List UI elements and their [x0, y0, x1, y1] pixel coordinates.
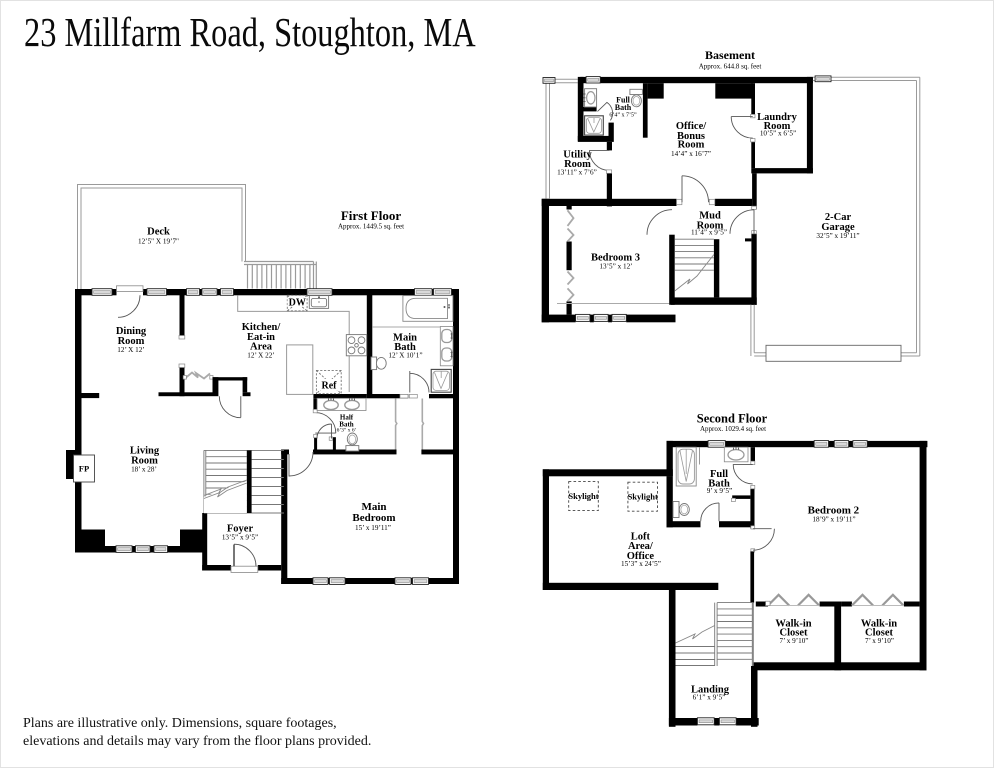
svg-text:First Floor: First Floor [341, 208, 402, 223]
svg-text:DW: DW [289, 298, 306, 309]
svg-text:Approx. 644.8 sq. feet: Approx. 644.8 sq. feet [699, 63, 762, 71]
svg-text:Approx. 1029.4 sq. feet: Approx. 1029.4 sq. feet [700, 425, 766, 433]
svg-text:32’5” x 19’11”: 32’5” x 19’11” [816, 232, 859, 240]
svg-text:14’4” x 16’7”: 14’4” x 16’7” [671, 150, 711, 158]
svg-text:11’4” x 9’5”: 11’4” x 9’5” [691, 229, 727, 237]
svg-text:Bedroom: Bedroom [352, 512, 395, 524]
svg-text:9’ x 9’5”: 9’ x 9’5” [707, 487, 732, 495]
svg-text:10’5” x 6’5”: 10’5” x 6’5” [760, 130, 796, 138]
svg-text:6’4” x 7’5”: 6’4” x 7’5” [609, 113, 637, 119]
svg-text:7’ x 9’10”: 7’ x 9’10” [779, 637, 808, 645]
svg-text:12’5" X 19’7": 12’5" X 19’7" [138, 238, 179, 246]
svg-text:Approx. 1449.5 sq. feet: Approx. 1449.5 sq. feet [338, 223, 404, 231]
svg-text:Skylight: Skylight [568, 491, 598, 501]
svg-text:12’ X 12’: 12’ X 12’ [117, 346, 144, 354]
svg-text:Basement: Basement [705, 48, 755, 62]
svg-text:15’ x 19’11”: 15’ x 19’11” [355, 524, 391, 532]
svg-text:FP: FP [79, 464, 89, 474]
svg-text:12’ X 10’1”: 12’ X 10’1” [388, 352, 422, 360]
svg-text:13’5” x 12’: 13’5” x 12’ [599, 263, 632, 271]
svg-text:Skylight: Skylight [628, 492, 658, 502]
svg-text:Deck: Deck [147, 227, 170, 238]
svg-text:15’3” x 24’5”: 15’3” x 24’5” [621, 560, 661, 568]
svg-text:Ref: Ref [322, 381, 338, 392]
svg-text:7’ x 9’10”: 7’ x 9’10” [865, 637, 894, 645]
svg-text:6’3” x 6’: 6’3” x 6’ [337, 428, 357, 434]
svg-text:18’ x 28’: 18’ x 28’ [131, 466, 157, 474]
svg-text:12’ X 22’: 12’ X 22’ [247, 352, 274, 360]
svg-text:Bath: Bath [615, 103, 632, 112]
svg-text:13’11” x 7’6”: 13’11” x 7’6” [557, 169, 597, 177]
svg-text:Second Floor: Second Floor [697, 412, 768, 426]
svg-text:18’9” x 19’11”: 18’9” x 19’11” [812, 516, 855, 524]
svg-text:6’1” x 9’5”: 6’1” x 9’5” [693, 694, 726, 702]
svg-text:13’5” x 9’5”: 13’5” x 9’5” [222, 533, 258, 541]
svg-text:Room: Room [678, 140, 705, 151]
